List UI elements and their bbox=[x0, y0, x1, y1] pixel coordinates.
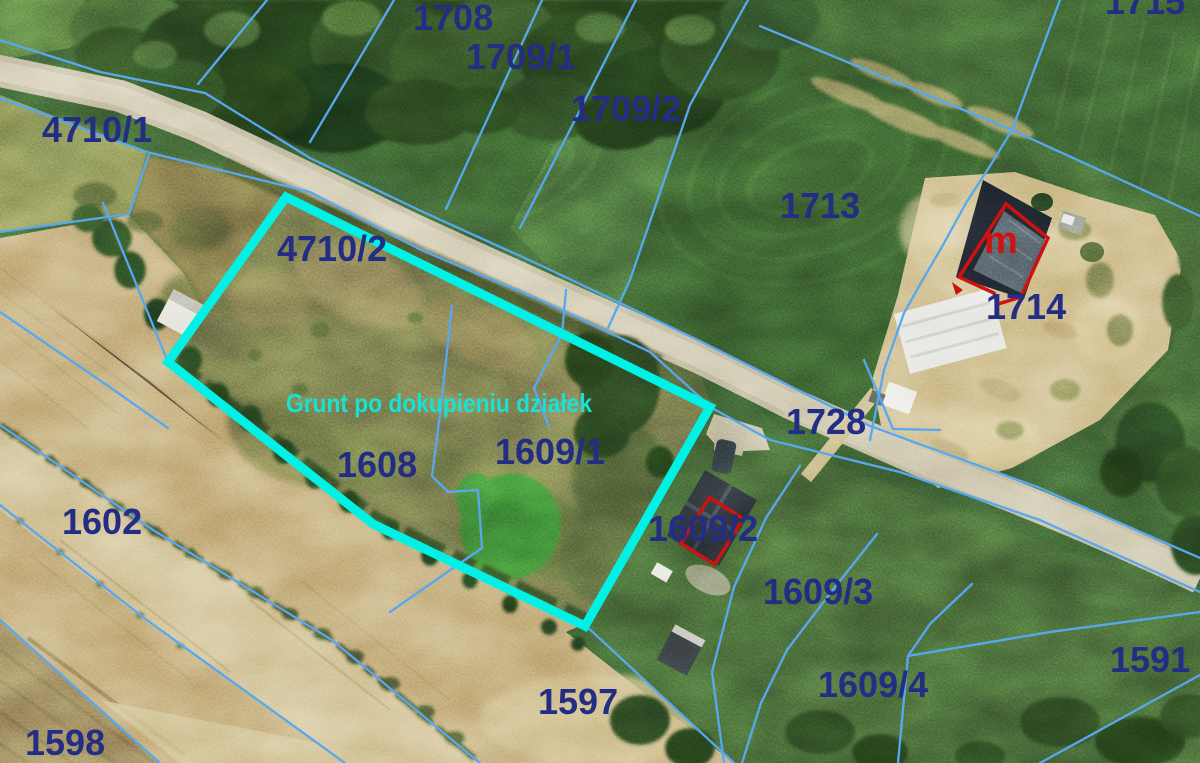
svg-text:1709/2: 1709/2 bbox=[571, 88, 681, 129]
svg-text:1714: 1714 bbox=[986, 286, 1066, 327]
svg-text:1591: 1591 bbox=[1110, 639, 1190, 680]
svg-text:1728: 1728 bbox=[786, 401, 866, 442]
svg-text:1715: 1715 bbox=[1105, 0, 1185, 22]
svg-text:4710/1: 4710/1 bbox=[42, 109, 152, 150]
svg-text:1708: 1708 bbox=[413, 0, 493, 38]
svg-text:m: m bbox=[984, 220, 1018, 262]
svg-text:Grunt po dokupieniu działek: Grunt po dokupieniu działek bbox=[286, 388, 592, 418]
svg-text:1609/1: 1609/1 bbox=[495, 431, 605, 472]
svg-text:1608: 1608 bbox=[337, 444, 417, 485]
svg-text:1609/3: 1609/3 bbox=[763, 571, 873, 612]
svg-text:1602: 1602 bbox=[62, 501, 142, 542]
svg-text:4710/2: 4710/2 bbox=[277, 228, 387, 269]
svg-text:1609/4: 1609/4 bbox=[818, 664, 928, 705]
svg-text:1713: 1713 bbox=[780, 185, 860, 226]
svg-text:1709/1: 1709/1 bbox=[466, 36, 576, 77]
svg-text:1609/2: 1609/2 bbox=[648, 508, 758, 549]
svg-text:1597: 1597 bbox=[538, 681, 618, 722]
svg-text:1598: 1598 bbox=[25, 722, 105, 763]
